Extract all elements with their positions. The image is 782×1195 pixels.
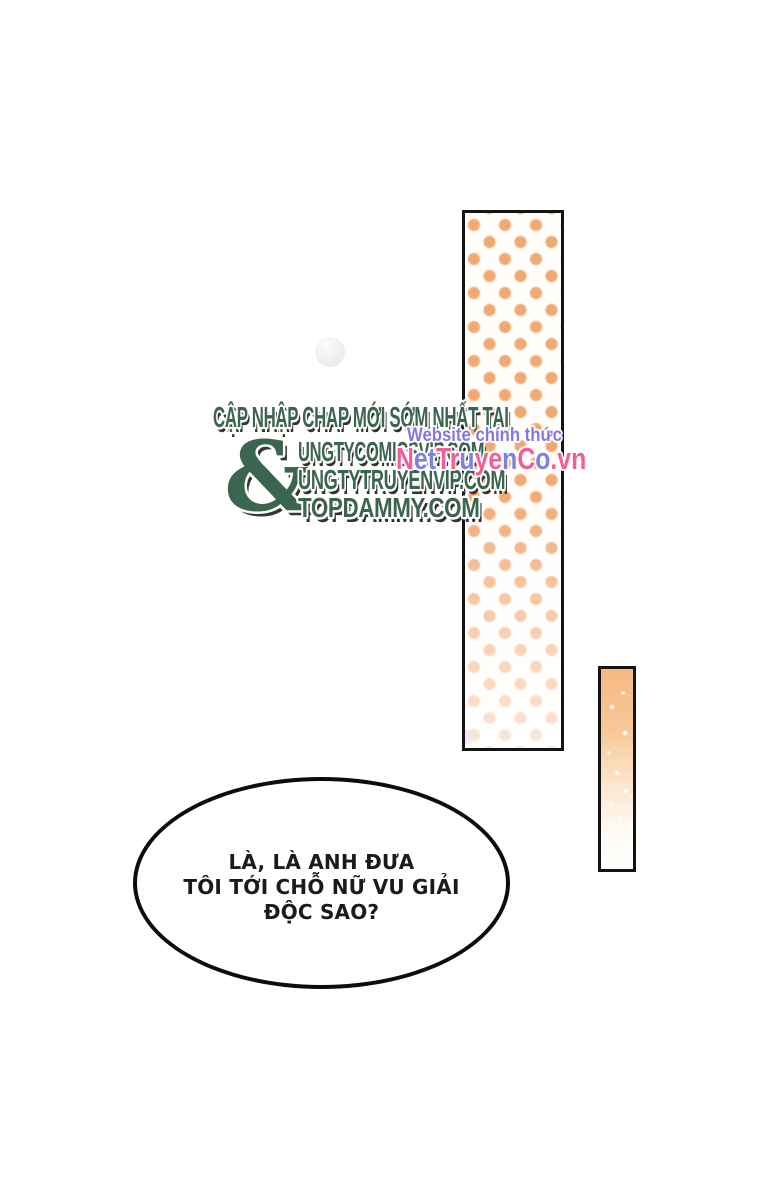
logo-letter: n: [502, 441, 517, 476]
logo-letter: T: [436, 441, 450, 476]
logo-letter: n: [571, 441, 586, 476]
comic-page: CẬP NHẬP CHAP MỚI SỚM NHẤT TẠI & UNGTYCO…: [0, 0, 782, 1195]
logo-letter: N: [396, 441, 414, 476]
official-site-watermark: Website chính thức NetTruyenCo.vn: [0, 0, 782, 1195]
logo-letter: o: [535, 441, 550, 476]
logo-letter: C: [517, 441, 535, 476]
logo-letter: v: [557, 441, 571, 476]
logo-letter: y: [475, 441, 489, 476]
logo-letter: t: [428, 441, 436, 476]
official-site-logo: NetTruyenCo.vn: [396, 441, 586, 477]
logo-letter: r: [450, 441, 460, 476]
logo-letter: e: [488, 441, 502, 476]
logo-letter: u: [459, 441, 474, 476]
logo-letter: .: [550, 441, 557, 476]
logo-letter: e: [414, 441, 428, 476]
